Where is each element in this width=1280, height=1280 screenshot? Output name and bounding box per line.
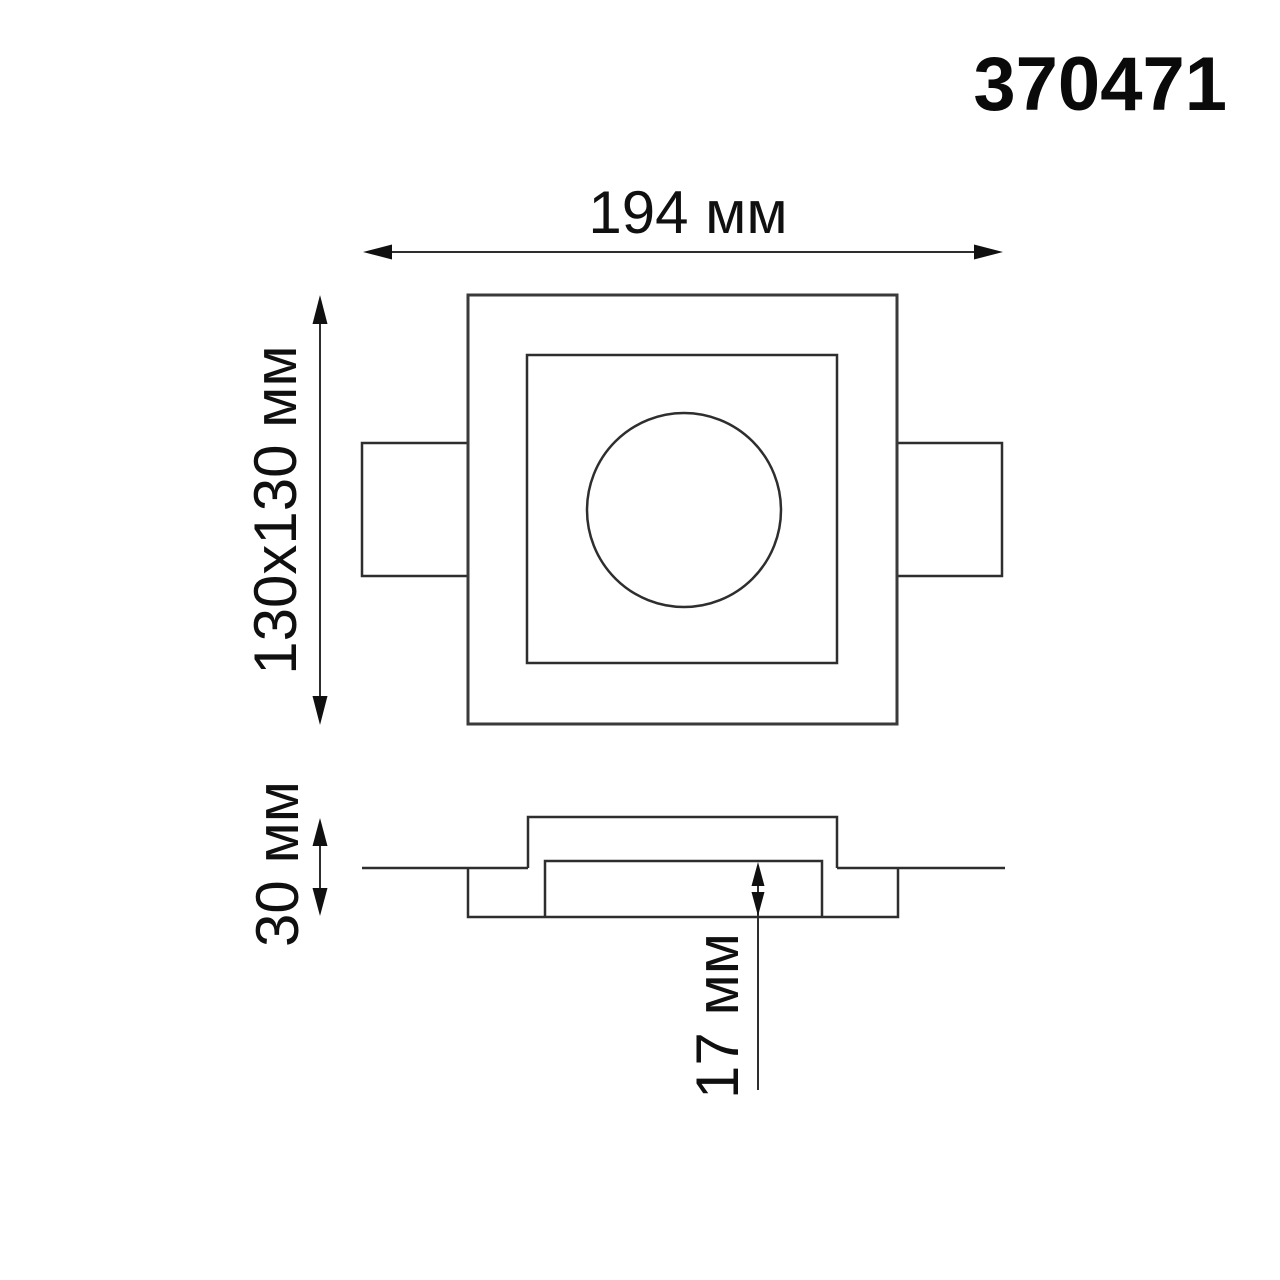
depth-dimension: 17 мм: [684, 862, 765, 1099]
side-view: [362, 817, 1005, 917]
height-dimension-label: 30 мм: [244, 781, 311, 947]
inner-frame-outline: [527, 355, 837, 663]
left-mounting-tab: [362, 443, 468, 576]
depth-dimension-label: 17 мм: [684, 933, 751, 1099]
technical-drawing: 370471 194 мм 130x130 мм: [0, 0, 1280, 1280]
arrow-left-icon: [363, 245, 392, 260]
arrow-up-icon: [313, 295, 328, 324]
arrow-down-icon: [752, 892, 765, 916]
arrow-down-icon: [313, 696, 328, 725]
arrow-down-icon: [313, 888, 328, 916]
cutout-dimension-label: 130x130 мм: [242, 345, 309, 674]
cutout-dimension: 130x130 мм: [242, 295, 328, 725]
arrow-right-icon: [974, 245, 1003, 260]
drawing-page: 370471 194 мм 130x130 мм: [0, 0, 1280, 1280]
arrow-up-icon: [752, 862, 765, 886]
width-dimension: 194 мм: [363, 179, 1003, 260]
body-profile: [468, 868, 898, 917]
width-dimension-label: 194 мм: [588, 179, 787, 246]
product-code-label: 370471: [973, 42, 1227, 127]
trim-plate-profile: [545, 861, 822, 917]
height-dimension: 30 мм: [244, 781, 328, 947]
right-mounting-tab: [897, 443, 1002, 576]
outer-flange-outline: [468, 295, 897, 724]
arrow-up-icon: [313, 818, 328, 846]
lamp-opening-circle: [587, 413, 781, 607]
top-view: [362, 295, 1002, 724]
